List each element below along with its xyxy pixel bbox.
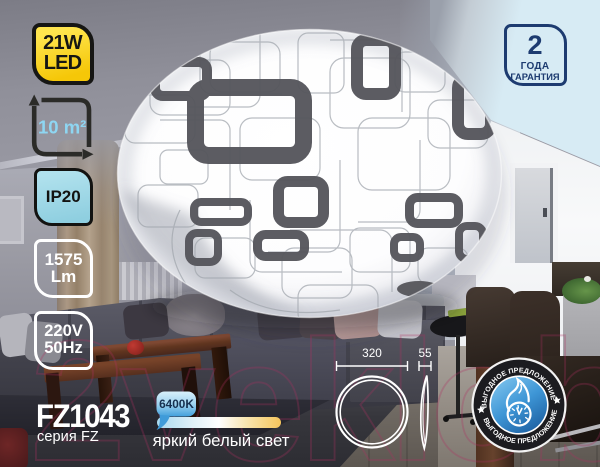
svg-text:6400K: 6400K (159, 397, 194, 411)
svg-text:55: 55 (418, 346, 432, 360)
svg-text:320: 320 (362, 346, 382, 360)
svg-text:10 m²: 10 m² (38, 117, 86, 138)
